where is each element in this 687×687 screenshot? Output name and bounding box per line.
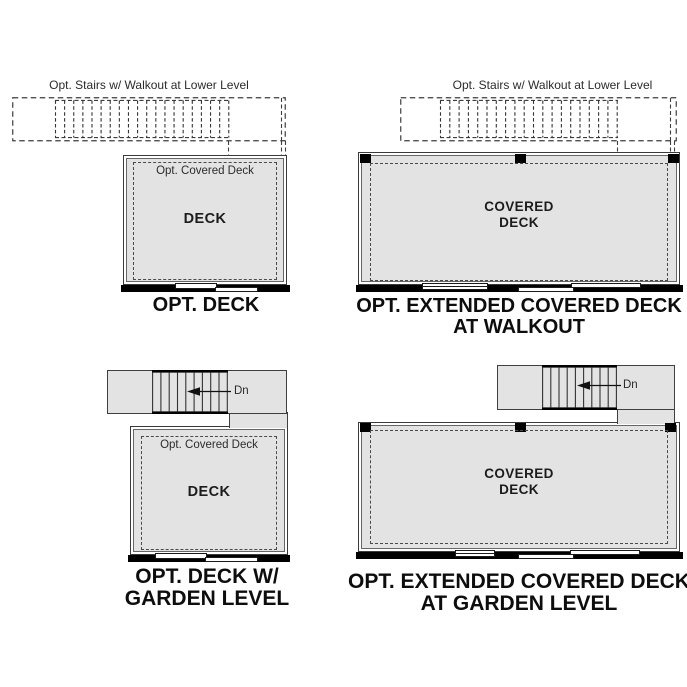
title-line2: GARDEN LEVEL	[82, 588, 332, 610]
window	[455, 550, 495, 557]
down-label: Dn	[623, 379, 638, 391]
floorplan-sheet: Opt. Stairs w/ Walkout at Lower Level Op…	[0, 0, 687, 687]
down-arrow-icon	[186, 384, 232, 399]
stairs-note-walkout: Opt. Stairs w/ Walkout at Lower Level	[415, 78, 687, 92]
sliding-door-panel	[215, 287, 258, 292]
room-label-line1: COVERED	[358, 199, 680, 215]
down-arrow-icon	[576, 378, 622, 393]
stairs-note-opt-deck: Opt. Stairs w/ Walkout at Lower Level	[12, 78, 286, 92]
room-label-garden: DECK	[130, 484, 288, 500]
sliding-door-panel	[518, 554, 574, 559]
window-mullion	[423, 286, 487, 287]
dashed-stairs-outline	[400, 97, 677, 153]
title-ext-garden: OPT. EXTENDED COVERED DECK AT GARDEN LEV…	[344, 571, 687, 615]
covered-note-opt-deck: Opt. Covered Deck	[123, 165, 287, 177]
sliding-door-panel	[205, 557, 258, 562]
title-line2: AT WALKOUT	[344, 317, 687, 338]
title-line1: OPT. EXTENDED COVERED DECK	[344, 571, 687, 593]
title-line1: OPT. DECK W/	[82, 566, 332, 588]
title-opt-deck: OPT. DECK	[100, 295, 312, 316]
walkout-passage	[229, 412, 288, 428]
walkout-passage	[617, 408, 675, 424]
deck-post	[668, 154, 679, 163]
sliding-door-panel	[571, 283, 641, 288]
title-line2: AT GARDEN LEVEL	[344, 593, 687, 615]
room-label-walkout: COVERED DECK	[358, 199, 680, 230]
sliding-door-panel	[175, 283, 217, 289]
sliding-door-panel	[570, 550, 640, 555]
room-label-ext-garden: COVERED DECK	[358, 466, 680, 497]
room-label-line2: DECK	[358, 215, 680, 231]
title-garden: OPT. DECK W/ GARDEN LEVEL	[82, 566, 332, 610]
room-label-line2: DECK	[358, 482, 680, 498]
sliding-door-panel	[155, 553, 207, 559]
window	[422, 283, 488, 290]
down-label: Dn	[234, 385, 249, 397]
sliding-door-panel	[518, 287, 574, 292]
title-line1: OPT. EXTENDED COVERED DECK	[344, 296, 687, 317]
room-label-opt-deck: DECK	[123, 211, 287, 227]
deck-post	[515, 154, 526, 163]
window-mullion	[456, 553, 494, 554]
dashed-stairs-outline	[12, 97, 286, 155]
room-label-line1: COVERED	[358, 466, 680, 482]
covered-note-garden: Opt. Covered Deck	[130, 439, 288, 451]
deck-post	[360, 154, 371, 163]
title-walkout: OPT. EXTENDED COVERED DECK AT WALKOUT	[344, 296, 687, 338]
